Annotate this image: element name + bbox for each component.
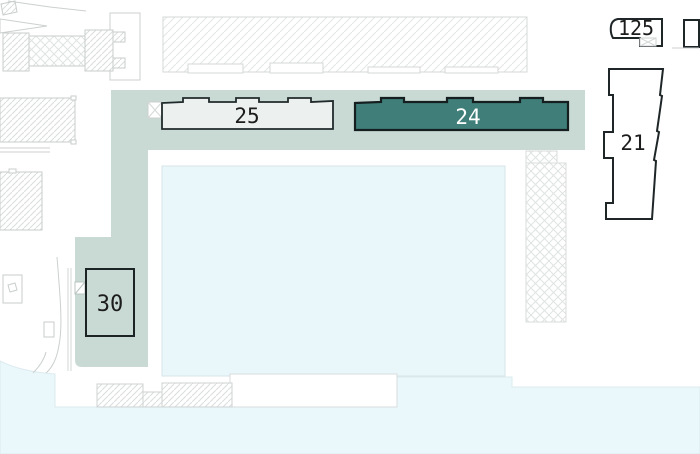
building-21[interactable]: 21 (604, 69, 663, 219)
flag-marker (75, 282, 85, 294)
building-notch (368, 67, 420, 73)
site-plan-page: 125 21 25 24 30 (0, 0, 700, 454)
building-tab (71, 96, 76, 100)
outline-building (230, 374, 397, 407)
hatched-block (0, 98, 75, 142)
building-25[interactable]: 25 (162, 98, 333, 129)
hatched-block (1, 1, 17, 15)
hatched-block (97, 384, 143, 407)
building-24[interactable]: 24 (355, 98, 568, 130)
building-21-label: 21 (620, 131, 645, 155)
hatched-block (113, 32, 125, 42)
crosshatched-block (29, 36, 86, 66)
building-notch (270, 63, 323, 73)
building-tab (71, 140, 76, 144)
building-30-label: 30 (97, 292, 124, 317)
hatched-block (113, 58, 125, 68)
utility-block (148, 102, 162, 118)
courtyard-water (162, 166, 505, 376)
hatched-block (85, 30, 113, 71)
edge-building (684, 20, 699, 47)
hatched-block (143, 392, 162, 407)
building-notch (188, 64, 243, 73)
building-tab (9, 169, 16, 173)
hatched-block (0, 172, 42, 230)
top-hatched-strip (163, 17, 527, 73)
building-24-label: 24 (455, 105, 480, 129)
building-25-label: 25 (234, 104, 259, 128)
small-structure (44, 322, 54, 337)
hatched-block (162, 383, 232, 407)
hatched-block (3, 33, 29, 71)
right-crosshatch-strip (526, 151, 566, 322)
site-map: 125 21 25 24 30 (0, 0, 700, 454)
small-structure (8, 283, 17, 292)
building-notch (445, 67, 498, 73)
outline-building (110, 13, 140, 80)
building-125-label: 125 (618, 16, 654, 40)
